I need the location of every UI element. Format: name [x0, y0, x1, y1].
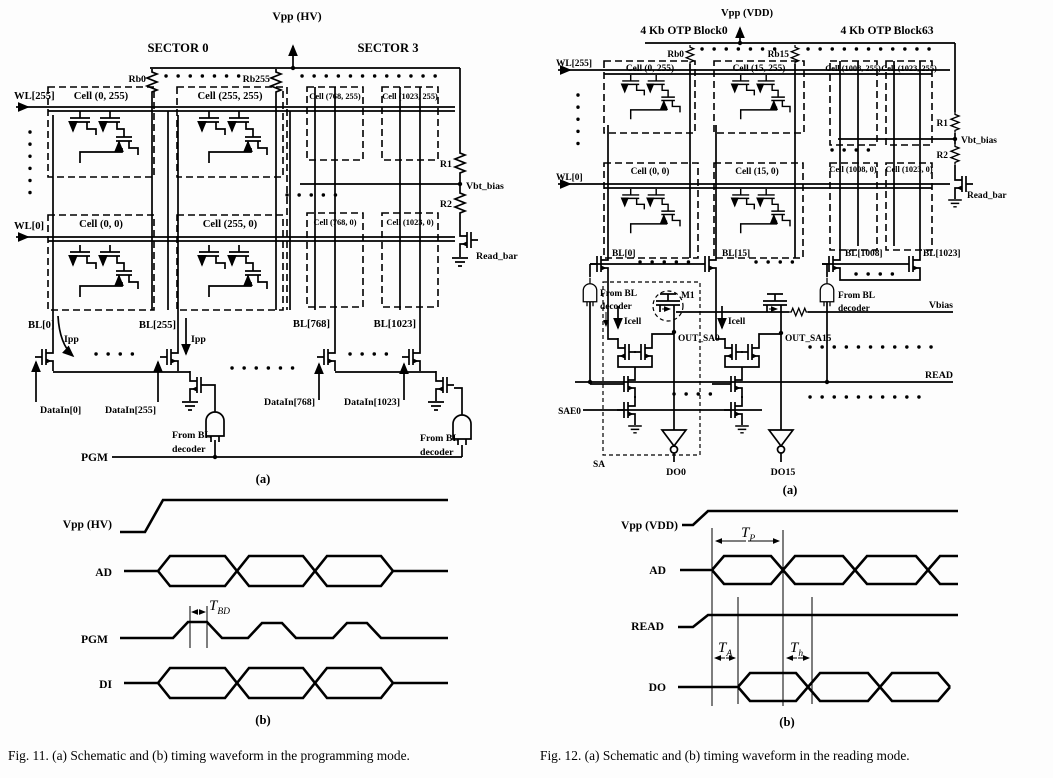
figure-canvas: SECTOR 0 SECTOR 3 Vpp (HV) Rb0 Rb255 R1 …: [0, 0, 1053, 778]
label-ipp: Ipp: [191, 334, 206, 345]
label-r2: R2: [937, 151, 949, 161]
label-cell: Cell (1008, 255): [825, 64, 881, 73]
wl255-line: [26, 107, 455, 111]
label-pgm: PGM: [81, 451, 108, 464]
label-rb15: Rb15: [768, 50, 790, 60]
panel-b-left: (b): [255, 713, 270, 727]
label-t-a: TA: [718, 640, 732, 659]
panel-a-left: (a): [256, 472, 271, 486]
read-wave: [678, 615, 958, 627]
cell-box: [830, 163, 877, 250]
label-bl1023: BL[1023]: [374, 319, 416, 330]
signal-label-vpp: Vpp (VDD): [621, 519, 678, 532]
fig11-schematic: SECTOR 0 SECTOR 3 Vpp (HV) Rb0 Rb255 R1 …: [14, 10, 518, 486]
label-cell: Cell (0, 255): [74, 91, 129, 102]
label-ipp: Ipp: [64, 334, 79, 345]
cell-box: [604, 163, 698, 258]
ad-wave: [124, 556, 448, 586]
label-decoder: decoder: [172, 444, 206, 455]
caption-fig11: Fig. 11. (a) Schematic and (b) timing wa…: [8, 748, 410, 763]
label-r1: R1: [440, 159, 452, 170]
label-wl0: WL[0]: [556, 173, 583, 183]
signal-label-ad: AD: [95, 566, 112, 579]
paper-figure-page: SECTOR 0 SECTOR 3 Vpp (HV) Rb0 Rb255 R1 …: [0, 0, 1053, 778]
label-cell: Cell (0, 0): [631, 166, 670, 177]
signal-label-vpp: Vpp (HV): [63, 518, 112, 531]
label-from-bl: From BL: [838, 291, 875, 301]
mirror15-wires: [725, 334, 781, 370]
label-datain1023: DataIn[1023]: [344, 397, 400, 408]
label-wl255: WL[255]: [556, 59, 592, 69]
label-from-bl: From BL: [600, 289, 637, 299]
fig12-waveform: Vpp (VDD) TP AD READ TA Th DO (b): [621, 511, 958, 729]
m15-transistor: [763, 294, 787, 333]
vbt-wire: [838, 133, 955, 144]
label-r1: R1: [937, 119, 949, 129]
bl-column-wires: [608, 61, 920, 250]
label-cell: Cell (1008, 0): [829, 165, 876, 174]
signal-label-do: DO: [649, 681, 666, 694]
signal-label-read: READ: [631, 620, 664, 633]
label-cell: Cell (1023, 0): [885, 165, 932, 174]
label-bl0: BL[0]: [612, 249, 635, 259]
panel-b-right: (b): [779, 715, 794, 729]
label-cell: Cell (768, 0): [313, 218, 356, 227]
label-sa: SA: [593, 460, 605, 470]
sector3-column-wires: [315, 87, 420, 343]
label-cell: Cell (255, 255): [197, 91, 262, 102]
label-cell: Cell (1023, 255): [382, 92, 438, 101]
label-bl768: BL[768]: [293, 319, 330, 330]
label-cell: Cell (15, 255): [733, 63, 786, 74]
ad-wave: [680, 556, 958, 584]
label-rb0: Rb0: [667, 50, 684, 60]
caption-fig12: Fig. 12. (a) Schematic and (b) timing wa…: [540, 748, 910, 763]
wl0-line: [26, 237, 455, 241]
label-bl0: BL[0]: [28, 320, 54, 331]
label-bl1023: BL[1023]: [923, 249, 961, 259]
label-t-bd: TBD: [209, 598, 230, 617]
signal-label-ad: AD: [649, 564, 666, 577]
fig12-schematic: Vpp (VDD) 4 Kb OTP Block0 4 Kb OTP Block…: [556, 8, 1007, 497]
label-t-h: Th: [790, 640, 803, 659]
do-wave: [678, 673, 950, 701]
label-sector3: SECTOR 3: [357, 41, 418, 55]
label-vbt-bias: Vbt_bias: [961, 136, 997, 146]
vbt-wire: [300, 176, 460, 190]
label-read: READ: [925, 370, 953, 381]
block63-rail: [840, 278, 920, 280]
label-m1: M1: [681, 291, 695, 301]
label-cell: Cell (768, 255): [309, 92, 361, 101]
and2-wires: [454, 388, 462, 457]
di-wave: [124, 668, 448, 698]
label-datain0: DataIn[0]: [40, 405, 81, 416]
label-read-bar: Read_bar: [967, 191, 1007, 201]
label-cell: Cell (255, 0): [203, 219, 258, 230]
label-rb255: Rb255: [243, 74, 270, 85]
label-wl0: WL[0]: [14, 221, 44, 232]
label-vbt-bias: Vbt_bias: [466, 181, 504, 192]
pgm-wave: [120, 622, 448, 638]
label-bl15: BL[15]: [722, 249, 750, 259]
cell-box: [886, 163, 932, 250]
label-do0: DO0: [666, 467, 686, 478]
signal-label-pgm: PGM: [81, 633, 108, 646]
label-decoder: decoder: [600, 302, 632, 312]
label-cell: Cell (0, 0): [79, 219, 123, 230]
rb-wires: [690, 64, 795, 258]
label-cell: Cell (1023, 255): [881, 64, 937, 73]
label-block63: 4 Kb OTP Block63: [840, 24, 933, 37]
vpp-wave: [120, 500, 448, 532]
stack15-wires: [712, 384, 742, 425]
cell-box: [382, 213, 438, 307]
label-do15: DO15: [771, 467, 796, 478]
label-vpp-hv: Vpp (HV): [272, 10, 321, 23]
label-sae0: SAE0: [558, 407, 581, 417]
label-bl255: BL[255]: [139, 320, 176, 331]
label-rb0: Rb0: [128, 74, 146, 85]
m1-transistor: [656, 294, 680, 332]
label-r2: R2: [440, 199, 452, 210]
wl0-line: [568, 184, 950, 188]
label-datain768: DataIn[768]: [264, 397, 315, 408]
label-read-bar: Read_bar: [476, 251, 518, 262]
label-datain255: DataIn[255]: [105, 405, 156, 416]
panel-a-right: (a): [783, 483, 798, 497]
label-vpp-vdd: Vpp (VDD): [721, 8, 774, 19]
vpp-wave: [682, 511, 958, 525]
label-icell: Icell: [728, 317, 746, 327]
label-cell: Cell (15, 0): [735, 166, 778, 177]
label-icell: Icell: [624, 317, 642, 327]
label-cell: Cell (1023, 0): [386, 218, 433, 227]
fig11-waveform: Vpp (HV) AD PGM TBD DI (b): [63, 500, 448, 727]
cell-box: [714, 163, 803, 258]
label-cell: Cell (0, 255): [626, 63, 674, 74]
label-sector0: SECTOR 0: [147, 41, 208, 55]
mirror-wires: [618, 334, 674, 370]
and1-wires: [208, 385, 215, 457]
label-out-sa15: OUT_SA15: [785, 334, 832, 344]
label-from-bl: From BL: [172, 430, 211, 441]
label-block0: 4 Kb OTP Block0: [640, 24, 727, 37]
label-from-bl: From BL: [420, 433, 459, 444]
label-bl1008: BL[1008]: [845, 249, 883, 259]
label-vbias: Vbias: [929, 300, 953, 311]
label-out-sa0: OUT_SA0: [678, 334, 720, 344]
signal-label-di: DI: [99, 678, 112, 691]
